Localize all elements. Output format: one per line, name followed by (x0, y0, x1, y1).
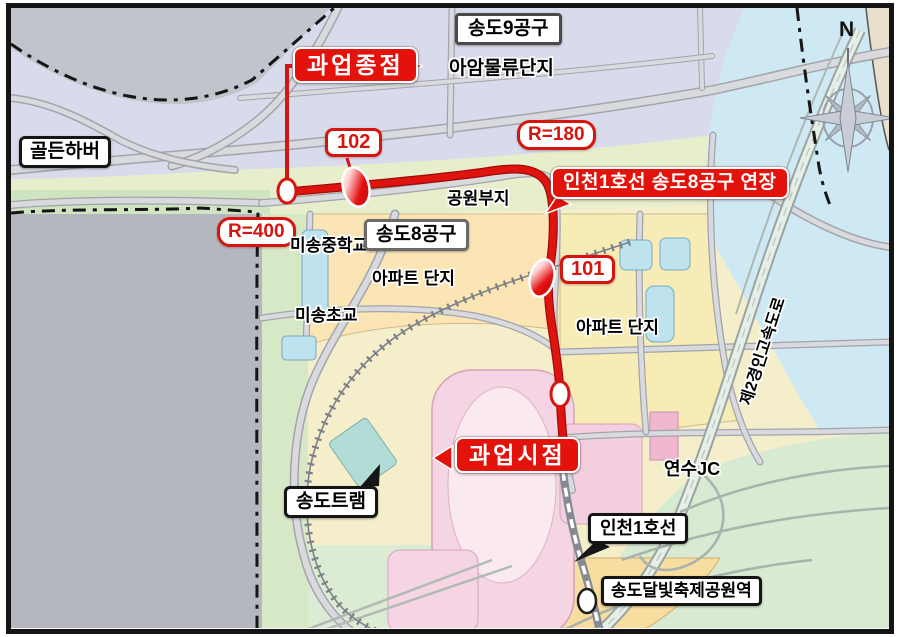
badge-station-101: 101 (560, 255, 615, 284)
callout-extension-line: 인천1호선 송도8공구 연장 (551, 167, 789, 199)
moonlight-station-circle (578, 589, 596, 613)
building-elementary (282, 336, 316, 360)
box-songdo-tram: 송도트램 (284, 486, 378, 518)
badge-r180: R=180 (517, 120, 596, 150)
box-golden-harbor: 골든하버 (19, 136, 111, 168)
gray-area-bottomleft (11, 214, 262, 632)
box-district8: 송도8공구 (364, 219, 469, 251)
box-moonlight-station: 송도달빛축제공원역 (601, 576, 762, 606)
badge-r400: R=400 (217, 217, 296, 247)
compass-north-label: N (839, 18, 854, 42)
callout-project-start: 과업시점 (455, 437, 580, 473)
label-yeonsu-jc: 연수JC (664, 459, 720, 480)
label-apartment-complex-left: 아파트 단지 (372, 269, 455, 289)
building-blue-2 (660, 238, 690, 270)
songdo-map-figure: 과업종점 송도9공구 아암물류단지 골든하버 R=180 102 인천1호선 송… (0, 0, 900, 637)
label-aam-logistics: 아암물류단지 (449, 58, 554, 80)
parcel-pink-south (388, 550, 478, 632)
box-district9: 송도9공구 (455, 13, 562, 45)
label-misong-elementary-school: 미송초교 (295, 306, 358, 326)
box-incheon-line1: 인천1호선 (588, 513, 688, 544)
label-apartment-complex-right: 아파트 단지 (576, 318, 659, 338)
route-start-circle (551, 382, 569, 407)
label-park-site: 공원부지 (447, 189, 510, 209)
callout-project-end: 과업종점 (293, 47, 418, 83)
route-end-circle (278, 179, 296, 203)
badge-station-102: 102 (325, 128, 382, 157)
label-misong-middle-school: 미송중학교 (290, 236, 368, 256)
